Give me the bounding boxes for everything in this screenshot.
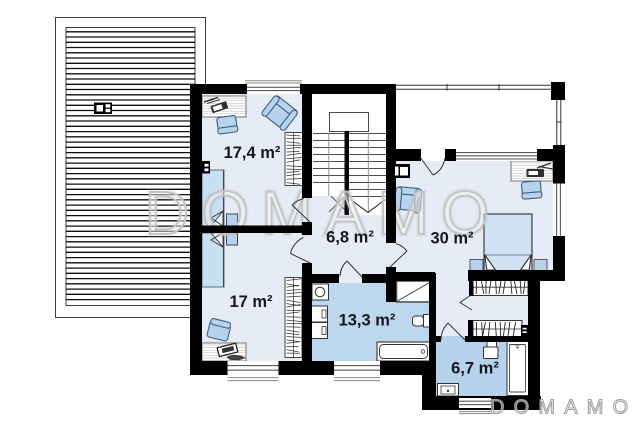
svg-text:6,7 m²: 6,7 m² bbox=[451, 360, 499, 378]
svg-text:17,4 m²: 17,4 m² bbox=[224, 144, 281, 162]
svg-text:DOMAMO: DOMAMO bbox=[490, 397, 637, 419]
svg-text:17 m²: 17 m² bbox=[229, 293, 273, 311]
svg-text:13,3 m²: 13,3 m² bbox=[339, 312, 396, 330]
svg-text:30 m²: 30 m² bbox=[430, 230, 474, 248]
svg-text:6,8 m²: 6,8 m² bbox=[326, 229, 374, 247]
